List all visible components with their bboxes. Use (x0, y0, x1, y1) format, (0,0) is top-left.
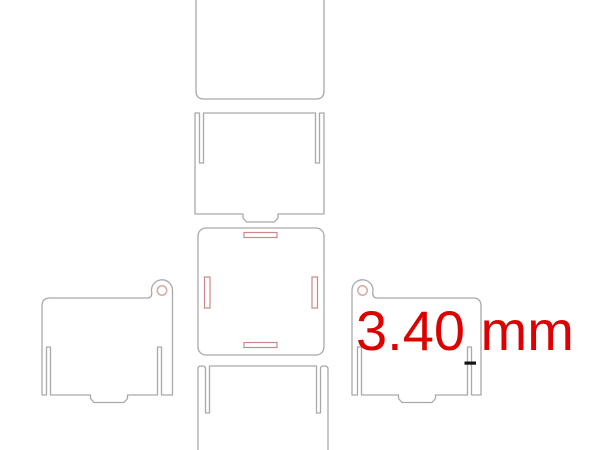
base-slot-top (244, 233, 277, 238)
top-lid-panel[interactable] (196, 0, 324, 99)
base-slot-right (312, 277, 318, 308)
lower-side-panel[interactable] (198, 366, 328, 450)
drawing-canvas: 3.40 mm (0, 0, 600, 450)
base-slot-bottom (244, 343, 277, 348)
dimension-label[interactable]: 3.40 mm (356, 299, 574, 362)
left-side-panel[interactable] (42, 280, 173, 403)
base-slot-left (205, 277, 211, 308)
cut-outline-layer (42, 0, 481, 450)
upper-side-panel[interactable] (195, 113, 324, 222)
base-panel[interactable] (198, 228, 324, 355)
